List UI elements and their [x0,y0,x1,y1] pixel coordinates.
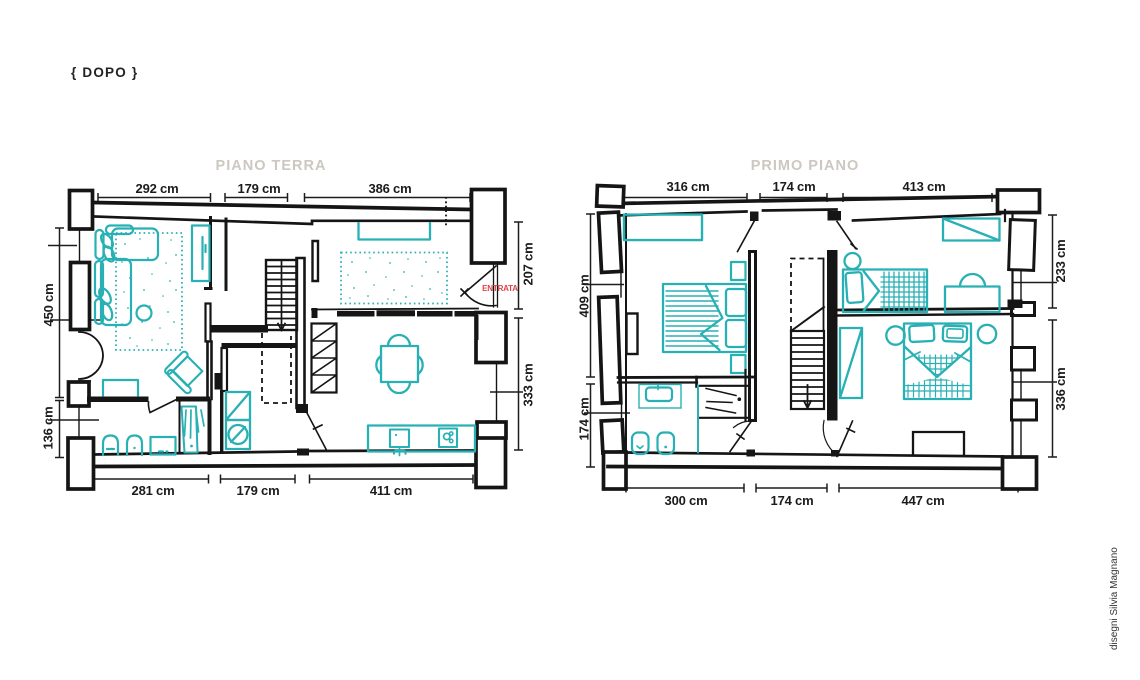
svg-text:disegni Silvia Magnano: disegni Silvia Magnano [1109,547,1120,650]
svg-text:179 cm: 179 cm [237,483,280,498]
svg-text:233 cm: 233 cm [1053,240,1068,283]
svg-text:136 cm: 136 cm [41,407,56,450]
svg-text:281 cm: 281 cm [132,483,175,498]
svg-text:316 cm: 316 cm [667,179,710,194]
svg-text:411 cm: 411 cm [370,483,412,498]
svg-text:450 cm: 450 cm [41,284,56,327]
svg-text:ENTRATA: ENTRATA [482,284,518,293]
svg-text:174 cm: 174 cm [577,398,592,441]
svg-text:300 cm: 300 cm [665,493,708,508]
svg-text:336 cm: 336 cm [1053,368,1068,411]
svg-text:447 cm: 447 cm [902,493,945,508]
svg-text:PRIMO PIANO: PRIMO PIANO [751,158,859,174]
svg-text:174 cm: 174 cm [773,179,816,194]
svg-text:386 cm: 386 cm [369,181,412,196]
svg-text:413 cm: 413 cm [903,179,946,194]
svg-text:409 cm: 409 cm [577,275,592,318]
svg-text:PIANO TERRA: PIANO TERRA [216,158,327,174]
svg-text:333 cm: 333 cm [521,364,536,407]
svg-text:179 cm: 179 cm [238,181,281,196]
svg-text:207 cm: 207 cm [521,243,536,286]
svg-text:174 cm: 174 cm [771,493,814,508]
svg-text:292 cm: 292 cm [136,181,179,196]
svg-text:{ DOPO }: { DOPO } [71,65,138,80]
